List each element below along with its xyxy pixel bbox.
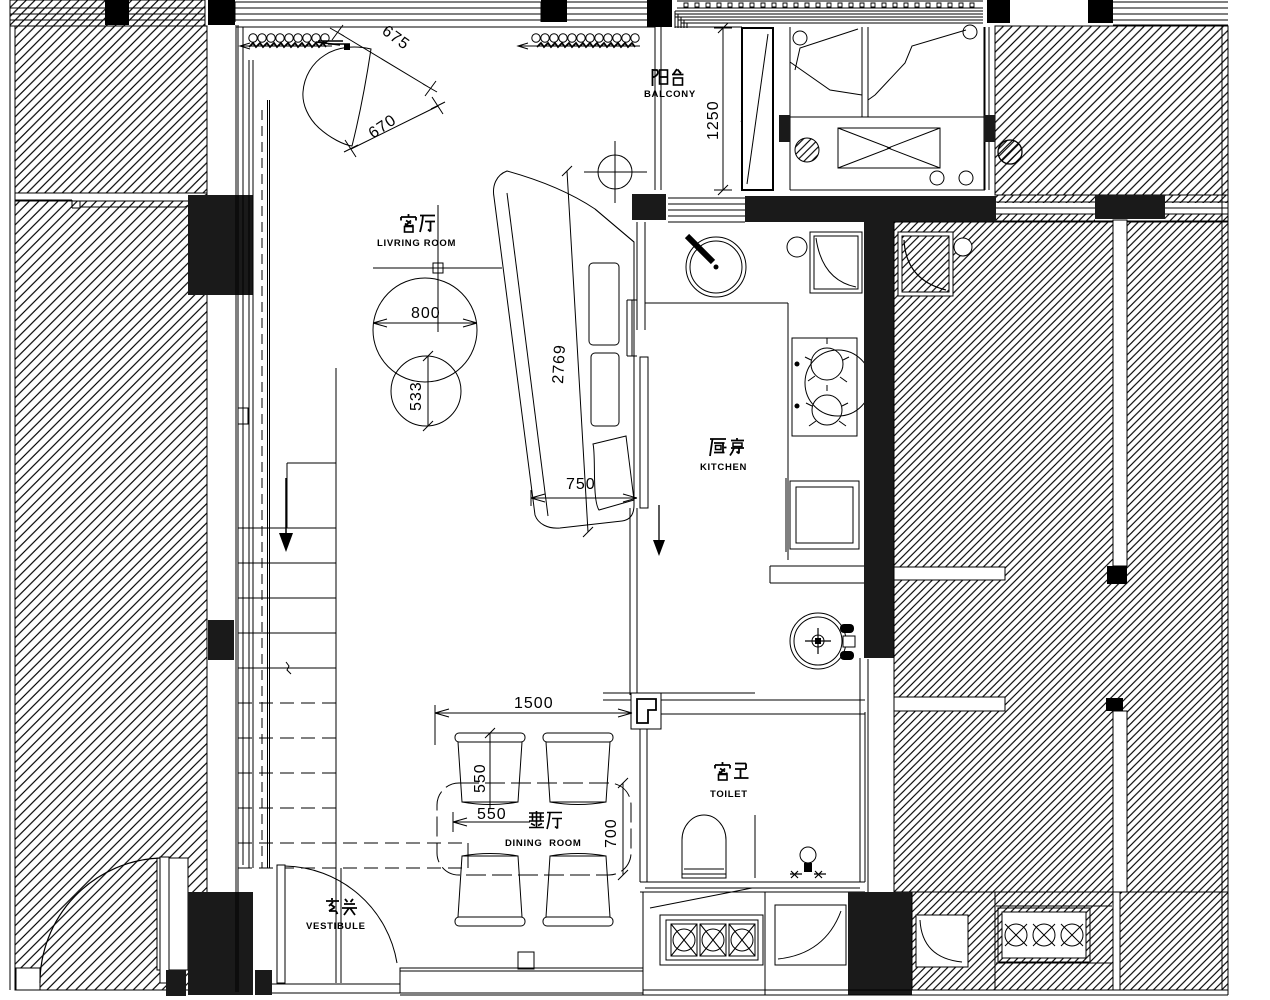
svg-text:550: 550 bbox=[477, 806, 507, 823]
svg-text:700: 700 bbox=[603, 818, 620, 848]
svg-text:BALCONY: BALCONY bbox=[644, 89, 696, 100]
svg-text:2769: 2769 bbox=[550, 344, 569, 384]
svg-text:533: 533 bbox=[408, 381, 425, 411]
svg-text:TOILET: TOILET bbox=[710, 789, 748, 800]
svg-text:VESTIBULE: VESTIBULE bbox=[306, 921, 366, 932]
svg-text:LIVRING ROOM: LIVRING ROOM bbox=[377, 238, 456, 249]
svg-text:DINING ROOM: DINING ROOM bbox=[505, 838, 581, 849]
svg-text:KITCHEN: KITCHEN bbox=[700, 462, 747, 473]
svg-text:750: 750 bbox=[566, 476, 596, 493]
svg-text:550: 550 bbox=[472, 763, 489, 793]
svg-text:1500: 1500 bbox=[514, 695, 554, 712]
svg-text:1250: 1250 bbox=[705, 100, 722, 140]
svg-text:800: 800 bbox=[411, 305, 441, 322]
